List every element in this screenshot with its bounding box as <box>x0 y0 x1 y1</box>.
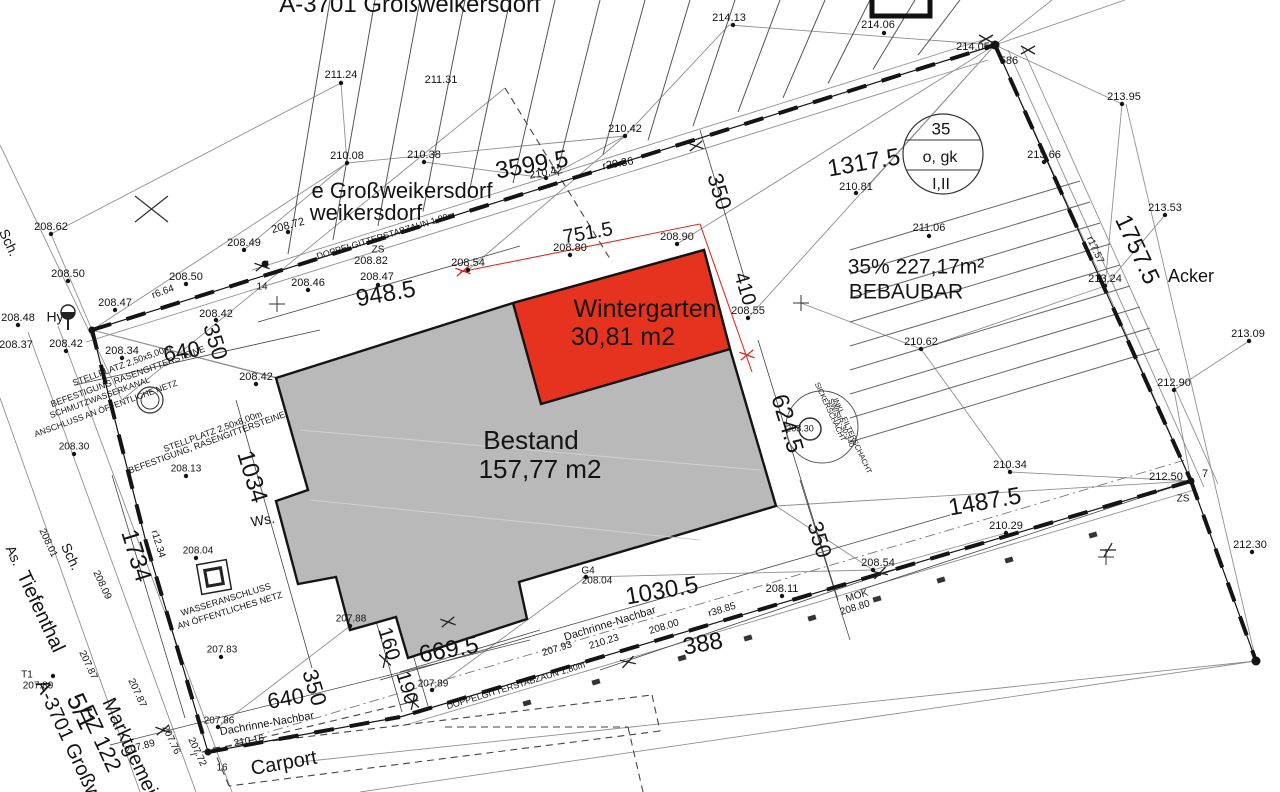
survey-line <box>995 0 1052 45</box>
map-label: 1487.5 <box>946 482 1023 521</box>
map-label: Carport <box>249 747 319 780</box>
map-label: 210.62 <box>904 336 938 348</box>
map-label: 208.04 <box>582 576 613 587</box>
map-label: 350 <box>802 518 837 560</box>
water-connection-inner <box>205 568 224 587</box>
map-label: 16 <box>216 763 228 774</box>
survey-line <box>625 25 729 136</box>
bestand-area: 157,77 m2 <box>479 454 602 484</box>
map-label: 213.95 <box>1107 91 1141 103</box>
survey-line <box>995 0 1125 45</box>
bestand-label: Bestand <box>483 425 578 455</box>
fence-post <box>1088 531 1097 538</box>
boundary-point <box>991 41 1000 50</box>
map-label: 211.06 <box>913 222 946 234</box>
hatch-line <box>850 328 1150 418</box>
survey-line <box>218 626 350 727</box>
neighbour-building <box>872 0 930 16</box>
hatch-line <box>828 0 870 84</box>
map-label: 208.54 <box>451 257 485 269</box>
map-label: 213.66 <box>1027 149 1061 161</box>
hatch-line <box>783 0 825 98</box>
map-label: 210.08 <box>330 150 364 162</box>
fence-post <box>1004 556 1013 563</box>
map-label: 7 <box>1202 468 1208 480</box>
map-label: 210.16 <box>233 733 265 749</box>
map-label: DOPPELGITTERSTABZAUN 1,80m <box>445 660 586 712</box>
map-label: r6.64 <box>150 283 176 301</box>
map-label: 210.29 <box>989 520 1023 532</box>
wintergarten-label: Wintergarten <box>573 295 716 323</box>
survey-point <box>339 81 343 85</box>
map-label: I,II <box>932 176 950 193</box>
fence-post <box>591 678 600 685</box>
hatch-line <box>850 349 1160 442</box>
map-label: 211.31 <box>425 74 458 86</box>
survey-line <box>677 45 995 244</box>
map-label: 208.62 <box>34 221 68 233</box>
map-label: 210.38 <box>407 149 441 161</box>
map-label: 210.42 <box>608 123 642 135</box>
hatch-line <box>558 0 600 169</box>
map-label: 208.82 <box>354 255 388 267</box>
map-label: 35 <box>932 119 951 138</box>
map-label: 208.42 <box>49 338 83 350</box>
survey-point <box>882 31 886 35</box>
map-label: 210.81 <box>839 181 873 193</box>
survey-line <box>1105 104 1122 286</box>
map-label: 208.13 <box>171 464 202 475</box>
survey-line <box>801 303 921 349</box>
map-label: 208.48 <box>1 312 35 324</box>
survey-line <box>347 136 625 163</box>
map-label: 208.55 <box>731 305 765 317</box>
hatch-line <box>873 0 915 69</box>
map-label: 208.49 <box>227 237 261 249</box>
map-label: 214.06 <box>861 19 895 31</box>
plus-mark <box>269 296 285 312</box>
map-label: Sch. <box>58 540 84 572</box>
survey-line <box>51 83 341 234</box>
plus-mark <box>793 295 809 311</box>
map-label: 640 <box>161 336 202 367</box>
survey-line <box>300 661 1256 762</box>
boundary-point <box>89 327 96 334</box>
map-label: 1030.5 <box>623 571 700 610</box>
survey-line <box>1174 390 1191 481</box>
dimension-line <box>112 475 185 718</box>
map-label: T1 <box>21 670 33 681</box>
fence-post <box>936 576 945 583</box>
map-label: As. <box>3 543 26 568</box>
wintergarten-area: 30,81 m2 <box>571 323 675 351</box>
map-label: 207.89 <box>418 679 449 690</box>
map-label: 208.01 <box>36 527 59 560</box>
map-label: Tiefenthal <box>12 568 69 656</box>
map-label: r29.36 <box>602 155 635 172</box>
fence-post <box>807 614 816 621</box>
map-label: 640 <box>265 683 306 714</box>
map-label: 586 <box>1000 55 1018 67</box>
map-label: weikersdorf <box>309 200 423 225</box>
map-label: 208.34 <box>105 345 139 357</box>
map-label: 1317.5 <box>825 143 902 182</box>
hatch-line <box>850 307 1140 394</box>
map-label: 208.47 <box>98 297 132 309</box>
map-label: ZS <box>1177 494 1190 505</box>
map-label: 207.83 <box>207 645 238 656</box>
site-plan-page: A-3701 Großweikersdorf Wintergarten 30,8… <box>0 0 1280 792</box>
fence-post <box>522 699 531 706</box>
survey-line <box>921 349 1010 472</box>
dashed-outline <box>628 727 643 792</box>
map-label: 207.88 <box>336 614 367 625</box>
map-label: 213.09 <box>1231 328 1265 340</box>
map-label: 208.42 <box>239 371 273 383</box>
boundary-point <box>1188 478 1195 485</box>
map-label: 212.90 <box>1157 377 1191 389</box>
map-label: 208.46 <box>291 277 325 289</box>
map-label: 207.87 <box>125 677 148 710</box>
map-label: 208.11 <box>766 583 799 595</box>
map-label: 208.54 <box>861 557 895 569</box>
dashed-outline <box>652 695 660 731</box>
map-label: o, gk <box>923 149 959 166</box>
hatch-line <box>648 0 690 140</box>
map-label: 214.05 <box>956 41 990 53</box>
map-label: 410 <box>729 270 760 308</box>
map-label: Acker <box>1168 266 1214 286</box>
map-label: BEBAUBAR <box>849 281 963 304</box>
map-label: 14 <box>256 282 268 293</box>
map-label: 208.50 <box>169 271 203 283</box>
map-label: 207.76 <box>159 724 182 757</box>
site-plan-drawing: A-3701 Großweikersdorf Wintergarten 30,8… <box>0 0 1280 792</box>
survey-line <box>995 45 1122 104</box>
map-label: 211.24 <box>325 69 358 81</box>
map-label: 208.42 <box>199 308 233 320</box>
water-connection-symbol <box>197 560 232 595</box>
survey-point <box>927 234 931 238</box>
dimension-line <box>758 340 838 600</box>
fence-post <box>872 595 881 602</box>
map-label: 208.04 <box>183 546 214 557</box>
map-label: 213.53 <box>1148 202 1182 214</box>
map-label: 208.50 <box>51 268 85 280</box>
drawing-title: A-3701 Großweikersdorf <box>279 0 541 18</box>
field-cross <box>135 196 168 222</box>
boundary-point <box>262 261 269 268</box>
map-label: 388 <box>681 627 725 661</box>
boundary-point <box>1252 657 1261 666</box>
map-label: 208.90 <box>660 231 694 243</box>
map-label: 212.50 <box>1149 471 1183 483</box>
map-label: Hy <box>46 309 63 325</box>
map-label: Sch. <box>0 226 22 258</box>
map-label: 210.34 <box>993 459 1027 471</box>
map-label: 212.30 <box>1233 539 1267 551</box>
map-label: 208.37 <box>0 339 33 351</box>
map-label: 214.13 <box>712 12 746 24</box>
map-label: 35% 227,17m² <box>848 256 985 279</box>
map-label: 1034 <box>231 447 272 506</box>
water-connection-outer <box>197 560 232 595</box>
map-label: 213.24 <box>1088 273 1122 285</box>
map-label: 207.93 <box>541 639 574 659</box>
map-label: 207.86 <box>204 716 235 727</box>
map-label: 350 <box>702 170 737 212</box>
map-label: 751.5 <box>561 218 614 248</box>
fence-post <box>743 634 752 641</box>
map-label: 208.00 <box>648 617 681 637</box>
map-label: 208.30 <box>59 442 90 453</box>
dimension-tick <box>1100 543 1116 557</box>
boundary-point <box>205 749 212 756</box>
hatch-line <box>918 0 960 55</box>
map-label: 208.30 <box>786 423 814 433</box>
plus-mark <box>1098 549 1114 565</box>
map-label: 207.87 <box>76 649 99 682</box>
map-label: 208.09 <box>90 569 113 602</box>
